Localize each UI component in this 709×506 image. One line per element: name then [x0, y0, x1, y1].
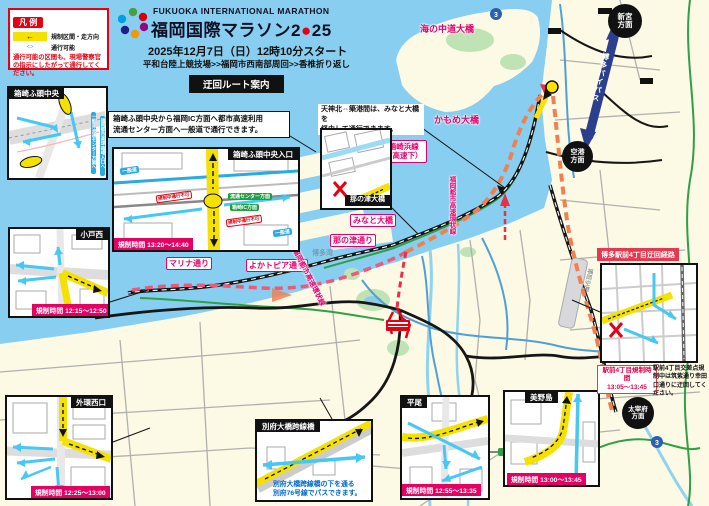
label-kuko: 空港 方面	[562, 141, 593, 172]
label-kuko-line2: 方面	[571, 157, 585, 165]
inset-title: 平尾	[402, 397, 427, 408]
marathon-detour-map: 3 3 FUKUOKA INTERNATIONAL MARATHON 福岡国際マ…	[0, 0, 709, 506]
inset-nanotsu-ohashi: 那の津大橋	[320, 128, 392, 210]
ekimae-time: 駅前4丁目規制時間 13:05～13:45	[597, 365, 657, 394]
shield-3a: 3	[494, 12, 498, 19]
inset-title: 別府大橋跨線橋	[257, 421, 320, 432]
header-title-jp: 福岡国際マラソン2●25	[151, 16, 332, 41]
label-dazaifu-line1: 太宰府	[628, 406, 648, 413]
label-loop-vertical: 福岡都市高速環状線	[446, 176, 456, 235]
detour-banner: 迂回ルート案内	[189, 75, 284, 93]
inset-time: 規制時間 12:55～13:35	[402, 484, 481, 496]
note-hakozaki-line1: 箱崎ふ頭中央から福岡IC方面へ都市高速利用	[113, 114, 285, 125]
inset-hakozaki-chuo: 箱崎ふ頭中央 一般道 流通センター方面へ 福岡都市高速 箱崎入口へ	[7, 86, 108, 180]
inset-hirao: 平尾 規制時間 12:55～13:35	[400, 395, 490, 500]
note-tenjin-line1: 天神北⇔築港間は、みなと大橋を	[321, 105, 421, 125]
red-zero-dot: ●	[301, 21, 312, 40]
inset-odo-nishi: 小戸西 規制時間 12:15～12:50	[8, 227, 110, 318]
ekimae-time-line2: 13:05～13:45	[601, 384, 653, 392]
inset-beppu: 別府大橋跨線橋 別府大橋跨線橋の下を通る 別府76号線でパスできます。	[255, 419, 373, 502]
label-marina: マリナ通り	[166, 257, 212, 270]
note-hakozaki-line2: 流通センター方面へ一般道で通行できます。	[113, 125, 285, 136]
label-shingu: 新宮 方面	[608, 4, 642, 38]
inset-title: 小戸西	[76, 229, 109, 240]
label-nanotsu-dori: 那の津通り	[330, 234, 376, 247]
marathon-logo	[118, 8, 148, 38]
label-kuko-line1: 空港	[571, 149, 585, 157]
inset-title: 箱崎ふ頭中央	[9, 88, 64, 99]
inset-time: 規制時間 13:20～14:40	[114, 238, 193, 250]
inset-gaikan: 外環西口 規制時間 12:25～13:00	[5, 395, 113, 500]
chip-ryutsu: 流通センター方面	[228, 193, 272, 200]
shield-3b: 3	[655, 440, 659, 447]
inset-minoshima: 美野島 規制時間 13:00～13:45	[503, 390, 600, 487]
inset-title: 外環西口	[71, 397, 111, 408]
beppu-note-line1: 別府大橋跨線橋の下を通る	[273, 480, 361, 489]
label-dazaifu: 太宰府 方面	[622, 397, 654, 429]
legend-restricted-label: 規制区間・走方向	[51, 32, 99, 41]
restricted-swatch: ←	[13, 32, 47, 41]
legend-title: 凡 例	[13, 17, 43, 28]
label-minato: みなと大橋	[350, 214, 396, 227]
label-umi-no-nakamichi: 海の中道大橋	[420, 22, 474, 35]
legend-passable-label: 通行可能	[51, 43, 75, 52]
inset-title: 美野島	[525, 392, 558, 403]
inset-side-label-a: 一般道 流通センター方面へ	[91, 112, 96, 174]
ekimae-note: 駅前4丁目交差点規制中は筑紫通り幸田口通りに迂回してください。	[653, 365, 707, 399]
turnaround-point	[546, 81, 558, 93]
label-kamome: かもめ大橋	[434, 113, 479, 126]
label-dazaifu-line2: 方面	[632, 413, 645, 420]
inset-time: 規制時間 13:00～13:45	[507, 473, 586, 485]
beppu-note: 別府大橋跨線橋の下を通る 別府76号線でパスできます。	[273, 480, 361, 498]
inset-title: 那の津大橋	[345, 195, 390, 206]
header-course: 平和台陸上競技場>>福岡市西南部周回>>香椎折り返し	[143, 58, 350, 70]
label-shingu-line2: 方面	[618, 21, 633, 29]
inset-side-label-b: 福岡都市高速 箱崎入口へ	[100, 116, 105, 176]
legend: 凡 例 ← 規制区間・走方向 ⇔ 通行可能 通行可能の区間も、現場警察官の指示に…	[8, 8, 109, 70]
header-date: 2025年12月7日（日）12時10分スタート	[148, 43, 347, 59]
inset-hakozaki-entrance: 箱崎ふ頭中央入口 一般道 一般道 規制中通行不可 規制中通行不可 流通センター方…	[112, 147, 300, 252]
start-marker	[386, 320, 410, 331]
inset-time: 規制時間 12:25～13:00	[31, 486, 110, 498]
chip-ic: 箱崎IC方面	[230, 204, 259, 211]
beppu-note-line2: 別府76号線でパスできます。	[273, 489, 361, 498]
header-title-en: FUKUOKA INTERNATIONAL MARATHON	[153, 6, 329, 16]
ekimae-time-line1: 駅前4丁目規制時間	[601, 367, 653, 384]
note-hakozaki: 箱崎ふ頭中央から福岡IC方面へ都市高速利用 流通センター方面へ一般道で通行できま…	[108, 111, 290, 138]
ekimae-title: 博多駅前4丁目迂回経路	[597, 248, 679, 261]
label-hakata-bay: 博多湾	[312, 248, 333, 258]
passable-swatch: ⇔	[13, 43, 47, 52]
inset-time: 規制時間 12:15～12:50	[32, 304, 110, 316]
inset-title: 箱崎ふ頭中央入口	[228, 149, 298, 160]
inset-ekimae	[600, 263, 698, 363]
legend-note: 通行可能の区間も、現場警察官の指示にしたがって通行してください。	[13, 54, 104, 79]
